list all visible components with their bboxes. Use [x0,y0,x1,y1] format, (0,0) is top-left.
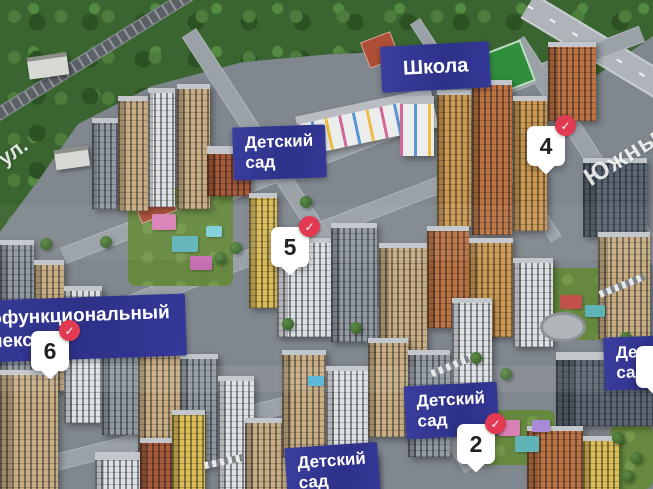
school-label-text: Школа [402,54,468,79]
multifunctional-label-line2: комплекс [0,325,171,356]
multifunctional-complex-label: Многофункциональный комплекс [0,294,187,365]
building [140,438,172,489]
tree [40,238,52,250]
check-icon: ✓ [485,413,506,434]
tree [622,470,634,482]
tree [282,318,294,330]
pin-bubble[interactable]: 2 ✓ [457,424,495,464]
tree [350,322,362,334]
building [368,338,408,437]
playground [172,236,198,252]
playground [515,436,539,452]
map-pin-4[interactable]: 4 ✓ [527,126,565,166]
playground [585,305,605,317]
building [245,418,287,489]
tree [214,252,226,264]
pin-number: 2 [470,431,483,458]
building [472,80,512,235]
residential-complex-map: ул. Южный Школа Детский сад Многофункцио… [0,0,653,489]
tree [300,196,312,208]
building [148,88,175,207]
check-icon: ✓ [299,216,320,237]
plaza [540,312,586,342]
kindergarten-label-bottom-left: Детский сад [284,442,380,489]
building [95,452,140,489]
pool [308,376,324,386]
building [282,350,326,457]
pin-bubble[interactable]: 6 ✓ [31,331,69,371]
kindergarten-label-line1: Детский [416,388,485,412]
playground [206,226,222,237]
playground [560,295,582,309]
school-building [400,96,434,156]
building [452,298,492,389]
map-pin-5[interactable]: 5 ✓ [271,227,309,267]
building [177,84,210,209]
check-icon: ✓ [555,115,576,136]
building [437,90,471,227]
map-pin-6[interactable]: 6 ✓ [31,331,69,371]
pin-number: 6 [44,338,57,365]
building [54,146,90,171]
tree [500,368,512,380]
pin-number: 5 [284,234,297,261]
pin-bubble[interactable]: 4 ✓ [527,126,565,166]
tree [630,452,642,464]
playground [152,214,176,230]
building [92,118,118,209]
kindergarten-label-line2: сад [298,469,368,489]
kindergarten-label-line1: Детский [244,131,313,154]
tree [470,352,482,364]
check-icon: ✓ [59,320,80,341]
kindergarten-label-top: Детский сад [232,124,326,180]
kindergarten-label-line2: сад [245,151,314,174]
building [0,370,58,489]
pin-bubble[interactable]: 5 ✓ [271,227,309,267]
playground [532,420,550,432]
playground [190,256,212,270]
tree [612,432,624,444]
building [583,436,619,489]
tree [230,242,242,254]
school-label: Школа [380,41,492,93]
pin-bubble[interactable] [636,346,653,388]
map-pin-2[interactable]: 2 ✓ [457,424,495,464]
building [118,96,148,211]
tree [100,236,112,248]
building [172,410,205,489]
building [548,42,596,121]
pin-number: 4 [540,133,553,160]
map-pin-partial[interactable] [636,346,653,388]
